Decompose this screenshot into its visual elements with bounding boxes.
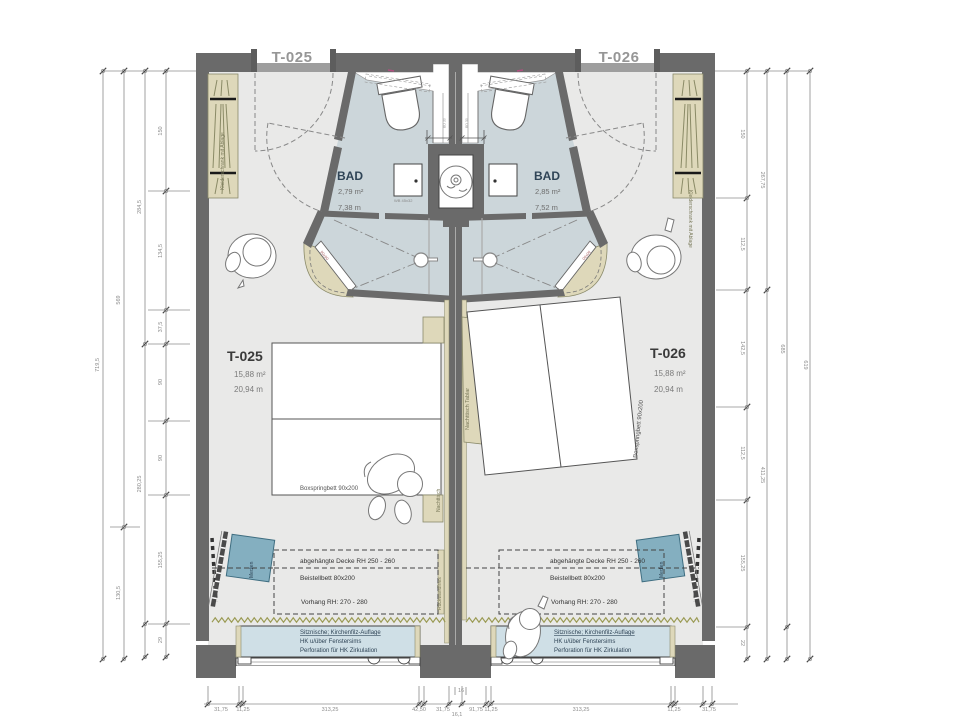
svg-text:91,75: 91,75 xyxy=(469,707,483,713)
svg-text:22: 22 xyxy=(739,640,745,646)
svg-text:Vorhang RH: 270 - 280: Vorhang RH: 270 - 280 xyxy=(551,599,618,606)
svg-text:284,5: 284,5 xyxy=(137,200,143,214)
svg-text:90: 90 xyxy=(158,379,164,385)
svg-text:411,25: 411,25 xyxy=(759,467,765,483)
svg-text:BAD: BAD xyxy=(337,169,363,183)
svg-text:619: 619 xyxy=(802,360,808,369)
svg-text:16,1: 16,1 xyxy=(452,712,463,718)
svg-text:280,25: 280,25 xyxy=(137,476,143,493)
svg-text:Beistellbett 80x200: Beistellbett 80x200 xyxy=(300,575,355,582)
svg-text:15,88 m²: 15,88 m² xyxy=(654,369,686,378)
svg-text:31,75: 31,75 xyxy=(702,707,716,713)
svg-text:Vorhang RH: 270 - 280: Vorhang RH: 270 - 280 xyxy=(301,599,368,606)
svg-text:90: 90 xyxy=(158,455,164,461)
svg-text:Rückwandfries: Rückwandfries xyxy=(437,577,443,610)
svg-text:11,25: 11,25 xyxy=(484,707,497,713)
svg-text:7,38 m: 7,38 m xyxy=(338,203,361,212)
svg-text:20,94 m: 20,94 m xyxy=(234,385,263,394)
svg-text:11,25: 11,25 xyxy=(667,707,680,713)
svg-text:T-025: T-025 xyxy=(272,49,313,66)
svg-text:31,75: 31,75 xyxy=(436,707,450,713)
svg-text:T-026: T-026 xyxy=(599,49,640,66)
svg-text:Nachttisch: Nachttisch xyxy=(436,488,442,512)
svg-text:31,75: 31,75 xyxy=(214,707,228,713)
svg-text:BAD: BAD xyxy=(534,169,560,183)
svg-text:Beistellbett 80x200: Beistellbett 80x200 xyxy=(550,575,605,582)
svg-text:29: 29 xyxy=(158,637,164,643)
svg-text:155,25: 155,25 xyxy=(739,555,745,572)
svg-text:WB 45x32: WB 45x32 xyxy=(394,198,413,203)
svg-text:267,75: 267,75 xyxy=(759,172,765,189)
svg-text:155,25: 155,25 xyxy=(158,552,164,569)
svg-text:Kleiderschrank mit Ablage: Kleiderschrank mit Ablage xyxy=(687,190,693,248)
svg-text:Perforation für HK Zirkulation: Perforation für HK Zirkulation xyxy=(554,648,631,654)
svg-text:T-026: T-026 xyxy=(650,345,686,361)
svg-text:112,5: 112,5 xyxy=(739,237,745,250)
svg-text:112,5: 112,5 xyxy=(739,446,745,459)
svg-text:HK u/über Fenstersims: HK u/über Fenstersims xyxy=(300,639,361,645)
svg-text:2,79 m²: 2,79 m² xyxy=(338,187,364,196)
svg-text:685: 685 xyxy=(779,344,785,353)
svg-text:150: 150 xyxy=(739,129,745,138)
svg-text:Nachttisch Tablar: Nachttisch Tablar xyxy=(465,388,471,430)
svg-text:134,5: 134,5 xyxy=(158,244,164,258)
svg-text:313,25: 313,25 xyxy=(573,707,590,713)
svg-text:15,88 m²: 15,88 m² xyxy=(234,370,266,379)
svg-text:130,5: 130,5 xyxy=(116,586,122,600)
svg-text:7,52 m: 7,52 m xyxy=(535,203,558,212)
svg-text:20,94 m: 20,94 m xyxy=(654,385,683,394)
svg-text:37,5: 37,5 xyxy=(158,322,164,333)
svg-text:11,25: 11,25 xyxy=(236,707,249,713)
svg-text:Sitznische; Kirchenfilz-Auflag: Sitznische; Kirchenfilz-Auflage xyxy=(300,630,381,636)
svg-text:T-025: T-025 xyxy=(227,348,263,364)
svg-text:Medien: Medien xyxy=(659,561,665,578)
svg-text:42,50: 42,50 xyxy=(412,707,426,713)
svg-text:HK u/über Fenstersims: HK u/über Fenstersims xyxy=(554,639,615,645)
svg-text:abgehängte Decke RH 250 - 260: abgehängte Decke RH 250 - 260 xyxy=(550,558,645,565)
svg-text:Perforation für HK Zirkulation: Perforation für HK Zirkulation xyxy=(300,648,377,654)
svg-text:150: 150 xyxy=(158,126,164,135)
svg-text:719,5: 719,5 xyxy=(95,358,101,372)
svg-text:569: 569 xyxy=(116,295,122,304)
svg-text:16: 16 xyxy=(458,688,464,694)
svg-text:142,5: 142,5 xyxy=(739,341,745,355)
svg-text:Kleiderschrank mit Ablage: Kleiderschrank mit Ablage xyxy=(220,132,226,190)
svg-text:2,85 m²: 2,85 m² xyxy=(535,187,561,196)
svg-text:abgehängte Decke RH 250 - 260: abgehängte Decke RH 250 - 260 xyxy=(300,558,395,565)
svg-text:Boxspringbett 90x200: Boxspringbett 90x200 xyxy=(300,486,359,492)
svg-text:Medien: Medien xyxy=(249,561,255,578)
svg-text:Sitznische; Kirchenfilz-Auflag: Sitznische; Kirchenfilz-Auflage xyxy=(554,630,635,636)
svg-text:313,25: 313,25 xyxy=(322,707,339,713)
